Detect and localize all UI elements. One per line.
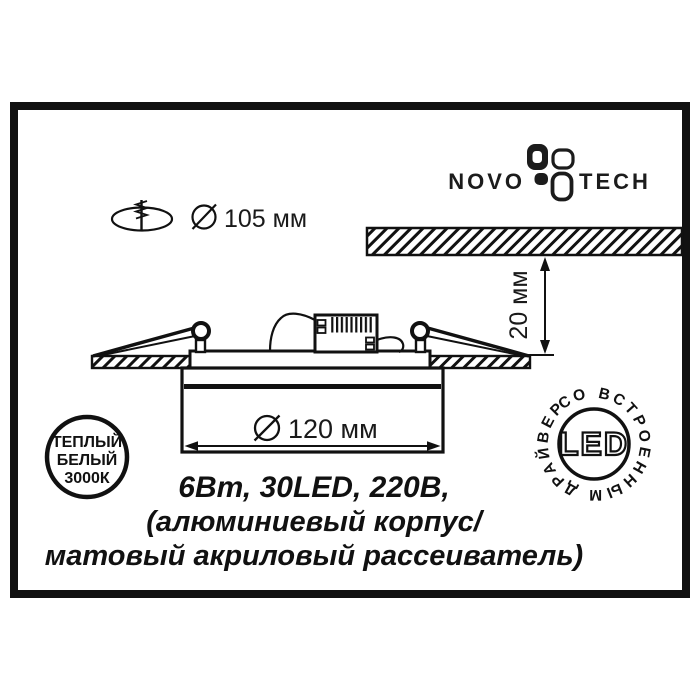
depth-dimension: 20 мм bbox=[505, 257, 554, 355]
logo-word-left: NOVO bbox=[448, 169, 525, 194]
technical-drawing: 105 мм NOVO TECH 20 мм bbox=[0, 0, 700, 700]
spec-line-3: матовый акриловый рассеиватель) bbox=[45, 540, 583, 572]
color-temp-badge: ТЕПЛЫЙ БЕЛЫЙ 3000К bbox=[47, 417, 127, 497]
ceiling-strip-right bbox=[430, 356, 530, 368]
drill-hole-icon bbox=[112, 200, 172, 232]
cutout-diameter-label: 105 мм bbox=[224, 205, 307, 233]
led-badge-center-label: LED bbox=[559, 426, 629, 462]
color-temp-line-3: 3000К bbox=[64, 470, 110, 487]
pinwheel-leaves-icon bbox=[527, 144, 573, 200]
spec-text-block: 6Вт, 30LED, 220В, (алюминиевый корпус/ м… bbox=[45, 471, 583, 572]
cutout-diameter-dimension: 105 мм bbox=[193, 205, 308, 234]
fixture-flange bbox=[190, 351, 430, 368]
diameter-label: 120 мм bbox=[288, 414, 378, 444]
ceiling-section-band bbox=[367, 228, 682, 255]
fixture-cross-section: 120 мм bbox=[92, 314, 530, 452]
wire-left bbox=[270, 314, 315, 351]
color-temp-line-2: БЕЛЫЙ bbox=[57, 450, 118, 469]
heatsink-fins bbox=[329, 317, 373, 333]
arrow-up-icon bbox=[540, 257, 550, 271]
spec-line-2: (алюминиевый корпус/ bbox=[146, 506, 485, 538]
ceiling-strip-left bbox=[92, 356, 190, 368]
diameter-sign-icon bbox=[193, 205, 217, 230]
arrow-down-icon bbox=[540, 340, 550, 354]
driver-box bbox=[315, 315, 377, 352]
logo-word-right: TECH bbox=[579, 169, 651, 194]
spec-sheet: 105 мм NOVO TECH 20 мм bbox=[0, 0, 700, 700]
spec-line-1: 6Вт, 30LED, 220В, bbox=[178, 471, 449, 504]
depth-label: 20 мм bbox=[505, 270, 533, 339]
novotech-logo: NOVO TECH bbox=[448, 144, 651, 200]
color-temp-line-1: ТЕПЛЫЙ bbox=[52, 432, 122, 451]
